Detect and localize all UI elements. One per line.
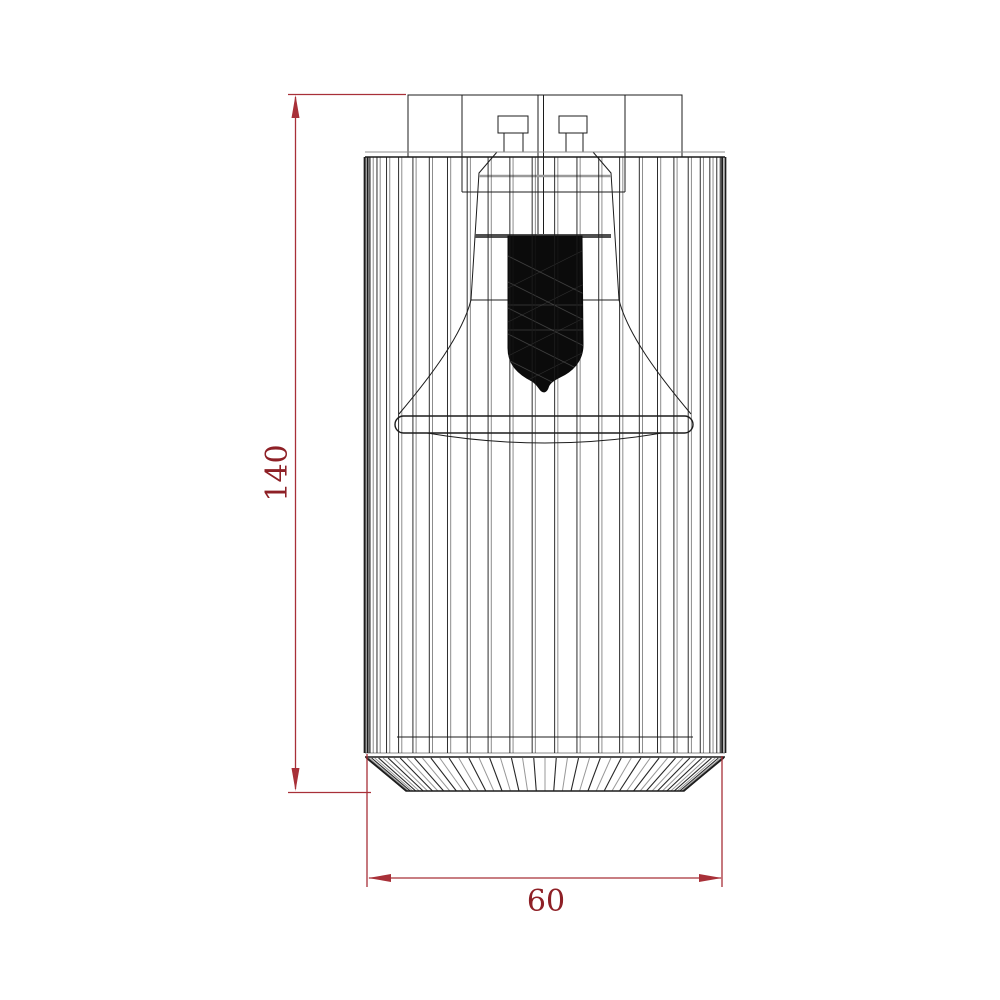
wire-line (554, 758, 557, 791)
height-dimension-label: 140 (260, 444, 295, 501)
wire-line (415, 758, 444, 791)
wire-line (422, 758, 449, 791)
dimension-arrow-down (292, 768, 300, 791)
wire-line (459, 758, 478, 791)
base-ring (366, 757, 724, 791)
socket-right-side (593, 152, 619, 300)
wire-line (604, 758, 621, 791)
wire-line (500, 758, 510, 791)
socket-left-side (471, 152, 497, 300)
dimension-arrow-left (368, 874, 391, 882)
wire-line (534, 758, 537, 791)
technical-drawing: 140 60 (0, 0, 1000, 1000)
dimension-arrow-up (292, 95, 300, 118)
terminal-left-stem (504, 133, 523, 152)
mounting-plate-outline (408, 95, 682, 157)
wire-line (571, 758, 578, 791)
wire-line (580, 758, 590, 791)
terminal-blocks (498, 116, 587, 152)
lens-under-arc (427, 433, 662, 443)
mounting-plate (408, 95, 682, 236)
wire-line (523, 758, 528, 791)
dimension-arrow-right (699, 874, 722, 882)
dimension-height: 140 (260, 95, 406, 793)
drawing-canvas: 140 60 (0, 0, 1000, 1000)
shade-rim (395, 416, 693, 433)
wire-line (562, 758, 567, 791)
wire-line (612, 758, 631, 791)
width-dimension-label: 60 (527, 884, 565, 919)
shade-curve-right (619, 300, 691, 414)
shade-curve-left (399, 300, 471, 414)
wire-line (469, 758, 486, 791)
base-fins (366, 758, 724, 791)
terminal-right-stem (566, 133, 583, 152)
wire-line (640, 758, 667, 791)
wire-line (646, 758, 675, 791)
terminal-right (559, 116, 587, 133)
terminal-left (498, 116, 528, 133)
wire-line (511, 758, 518, 791)
